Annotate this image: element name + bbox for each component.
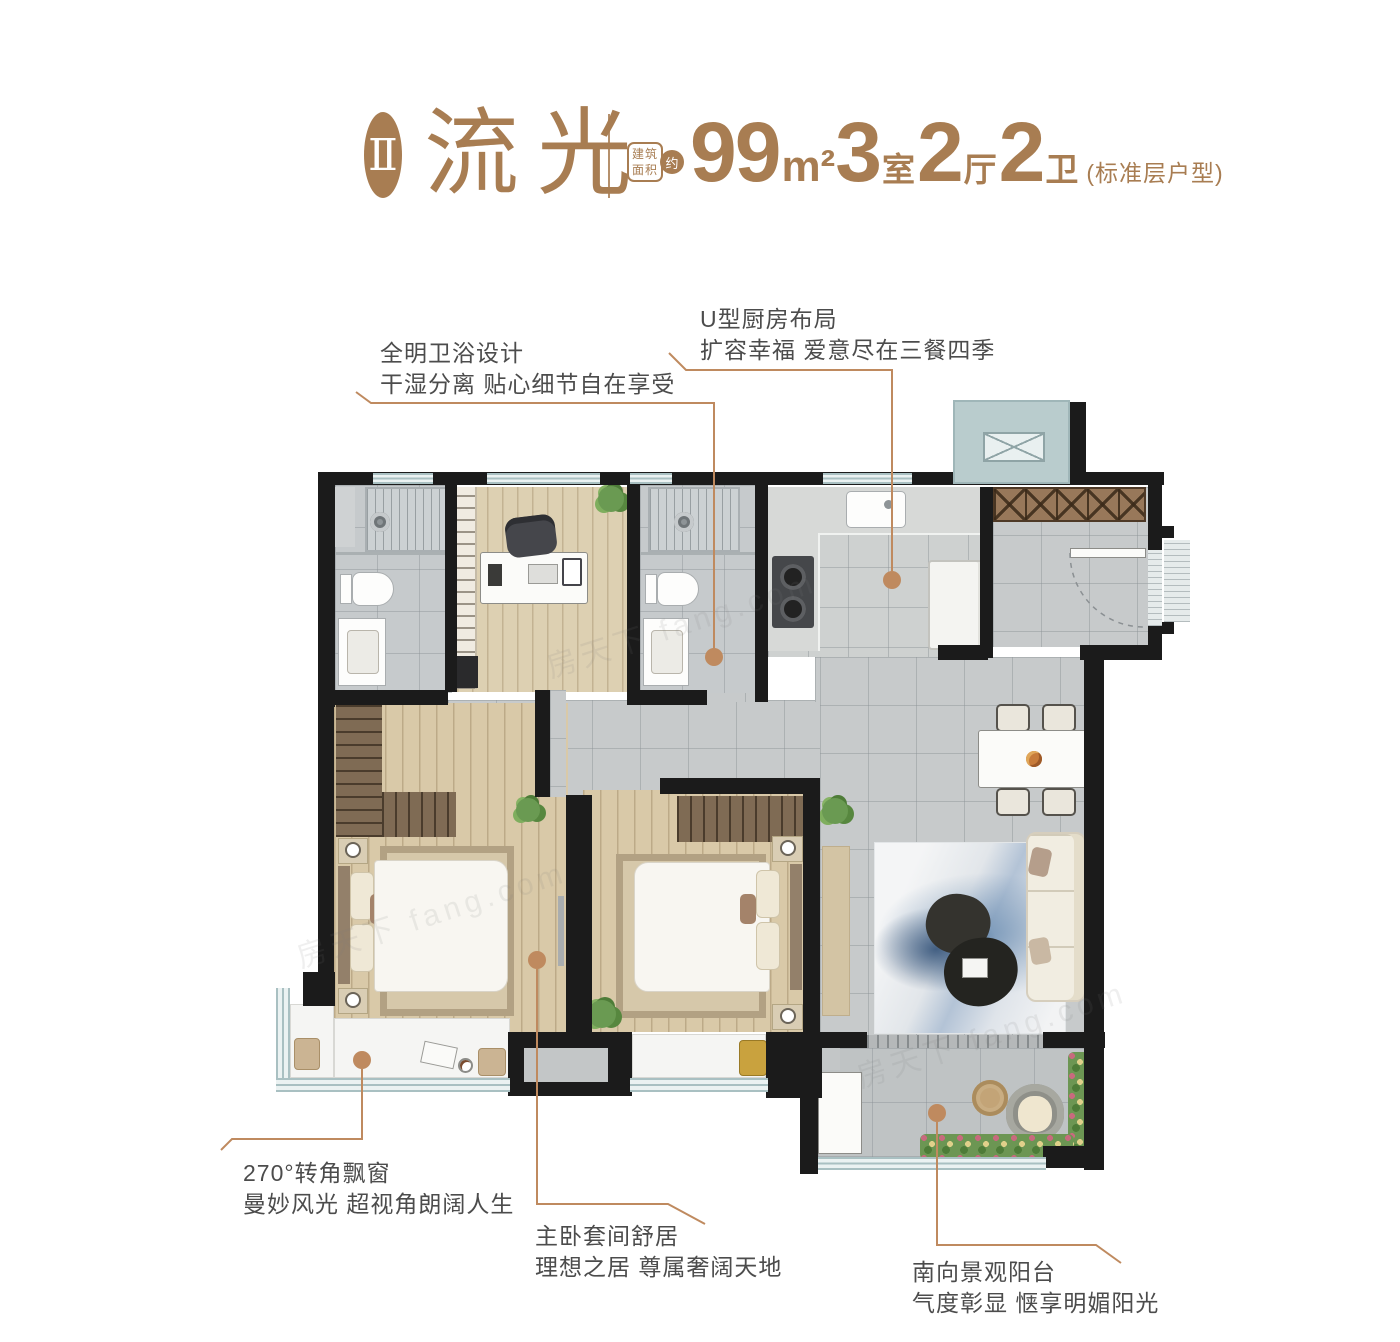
shower-head-icon	[370, 512, 390, 532]
lamp-icon	[345, 992, 361, 1008]
wall	[1068, 402, 1086, 472]
coffee-table-tray	[962, 958, 988, 978]
wall	[566, 795, 592, 1034]
stat-livingrooms-value: 2	[917, 104, 962, 200]
kitchen-faucet	[884, 500, 893, 509]
bay-pillow	[294, 1038, 320, 1070]
window	[823, 473, 912, 484]
wall	[318, 472, 335, 707]
wardrobe-master-vertical	[336, 705, 382, 837]
shower-area-2	[648, 487, 740, 552]
wall	[1148, 484, 1162, 550]
wall	[660, 778, 820, 794]
rattan-pouf	[972, 1080, 1008, 1116]
plant-bedroom1	[516, 798, 540, 822]
floor-type-note: (标准层户型)	[1086, 125, 1223, 221]
bedroom-door-niche	[550, 690, 566, 797]
callout-bathroom-line2: 干湿分离 贴心细节自在享受	[380, 369, 675, 400]
entry-door-leaf	[1070, 548, 1146, 558]
bed2-pillow	[756, 870, 780, 918]
dining-chair	[996, 788, 1030, 816]
wall	[445, 484, 457, 692]
equipment-platform-hatch	[983, 432, 1045, 462]
bed2-pillow	[756, 922, 780, 970]
callout-kitchen-line1: U型厨房布局	[700, 304, 995, 335]
wall	[1162, 526, 1174, 538]
badge-numeral: Ⅱ	[368, 130, 398, 181]
pier-inset	[524, 1048, 608, 1082]
callout-balcony: 南向景观阳台 气度彰显 惬享明媚阳光	[912, 1257, 1159, 1319]
plant-bedroom2	[588, 1000, 616, 1028]
wall	[980, 487, 993, 658]
dining-chair	[1042, 788, 1076, 816]
wall	[803, 790, 820, 1032]
plant-study	[598, 486, 624, 512]
entry-closet	[992, 487, 1146, 522]
floorplan-page: Ⅱ 流光 建筑 面积 约 99 m² 3 室 2 厅 2 卫 (标准层户型)	[0, 0, 1400, 1342]
callout-bay-window: 270°转角飘窗 曼妙风光 超视角朗阔人生	[243, 1158, 514, 1220]
plan-title: 流光	[424, 100, 650, 208]
callout-bathroom-line1: 全明卫浴设计	[380, 338, 675, 369]
wall	[627, 690, 707, 705]
fridge	[928, 560, 986, 650]
exterior-landing	[1164, 540, 1190, 622]
kitchen-sink	[846, 491, 906, 528]
desk-chair	[504, 513, 559, 559]
bay-window-bottom	[276, 1078, 510, 1092]
wall	[303, 972, 335, 1006]
stat-livingrooms-unit: 厅	[964, 122, 997, 218]
printer	[456, 656, 478, 688]
wardrobe-master-horizontal	[382, 792, 456, 837]
bay-pillow-2	[478, 1048, 506, 1076]
callout-balcony-line2: 气度彰显 惬享明媚阳光	[912, 1288, 1159, 1319]
plant-living	[822, 798, 848, 824]
sliding-door-panels	[558, 896, 564, 966]
desk-books	[488, 564, 502, 586]
toilet1-bowl	[352, 572, 394, 606]
bed2-accent-pillow	[740, 894, 756, 924]
bay-window-left	[276, 988, 290, 1090]
toilet1-tank	[340, 574, 352, 604]
bay-coffee-cup	[458, 1058, 473, 1073]
approx-circle: 约	[660, 150, 684, 174]
area-unit: m²	[781, 119, 835, 215]
sink1-bowl	[347, 630, 379, 674]
callout-kitchen-line2: 扩容幸福 爱意尽在三餐四季	[700, 335, 995, 366]
wall	[535, 690, 550, 797]
callout-bay-window-line1: 270°转角飘窗	[243, 1158, 514, 1189]
wall	[1162, 622, 1174, 634]
bed2-headboard	[790, 864, 802, 990]
wall	[1043, 1146, 1104, 1168]
wall	[1148, 626, 1162, 660]
sofa-pillow-2	[1028, 936, 1052, 965]
balcony-window	[818, 1157, 1046, 1170]
stat-bathrooms-unit: 卫	[1045, 122, 1078, 218]
bed2-mattress	[634, 862, 770, 992]
wall	[318, 690, 448, 705]
roman-numeral-badge: Ⅱ	[364, 112, 402, 198]
tv-console	[822, 846, 850, 1016]
callout-bay-window-line2: 曼妙风光 超视角朗阔人生	[243, 1189, 514, 1220]
balcony-chair-cushion	[1018, 1096, 1052, 1132]
area-stats: 99 m² 3 室 2 厅 2 卫 (标准层户型)	[690, 104, 1224, 200]
window	[630, 473, 672, 484]
toilet2-tank	[645, 574, 657, 604]
wall	[766, 1032, 822, 1098]
bay-gold-pillow	[739, 1040, 767, 1076]
bedroom2-bay-window	[630, 1078, 768, 1092]
callout-master-suite-line2: 理想之居 尊属奢阔天地	[535, 1252, 782, 1283]
shower-head-icon-2	[674, 512, 694, 532]
stat-bedrooms-value: 3	[835, 104, 880, 200]
callout-balcony-line1: 南向景观阳台	[912, 1257, 1159, 1288]
lamp-icon	[345, 842, 361, 858]
bath1-wall-niche	[335, 487, 355, 547]
area-label-line2: 面积	[632, 162, 658, 178]
dining-chair	[996, 704, 1030, 732]
stat-bathrooms-value: 2	[999, 104, 1044, 200]
lamp-icon	[780, 840, 796, 856]
wall	[938, 645, 988, 660]
fruit-bowl	[1026, 751, 1042, 767]
desk-laptop	[528, 564, 558, 584]
area-value: 99	[690, 104, 779, 200]
dining-chair	[1042, 704, 1076, 732]
callout-bathroom: 全明卫浴设计 干湿分离 贴心细节自在享受	[380, 338, 675, 400]
entry-door-threshold	[1148, 550, 1162, 626]
desk-tablet	[562, 558, 582, 586]
area-label-line1: 建筑	[632, 146, 658, 162]
shower-glass-line	[335, 552, 448, 555]
shower-glass-line-2	[640, 552, 755, 555]
window	[487, 473, 600, 484]
stat-bedrooms-unit: 室	[882, 122, 915, 218]
balcony-cabinet	[818, 1072, 862, 1154]
window	[373, 473, 433, 484]
area-label-box: 建筑 面积	[627, 142, 663, 182]
callout-kitchen: U型厨房布局 扩容幸福 爱意尽在三餐四季	[700, 304, 995, 366]
header-divider	[608, 114, 610, 198]
callout-master-suite-line1: 主卧套间舒居	[535, 1221, 782, 1252]
lamp-icon	[780, 1008, 796, 1024]
callout-master-suite: 主卧套间舒居 理想之居 尊属奢阔天地	[535, 1221, 782, 1283]
